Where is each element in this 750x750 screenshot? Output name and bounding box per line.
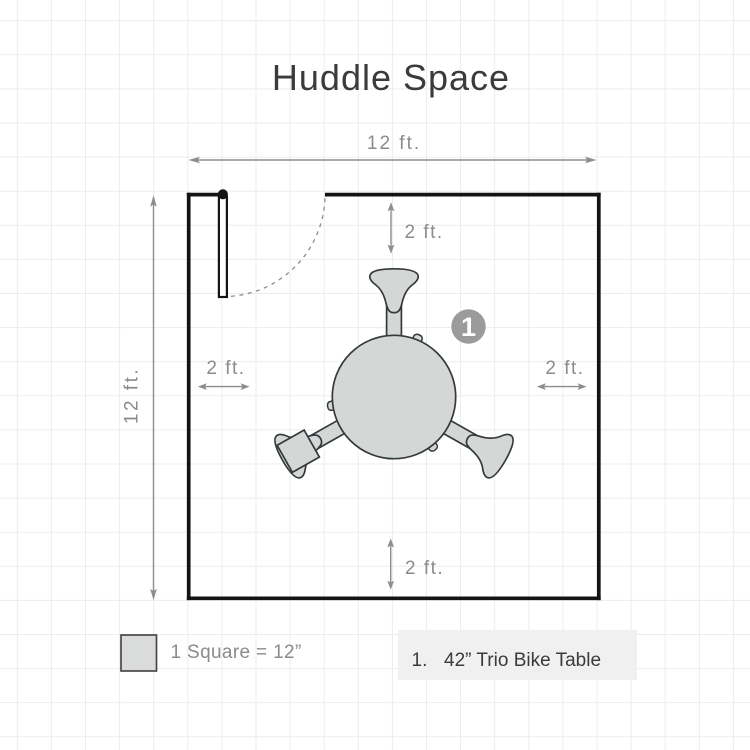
svg-text:2 ft.: 2 ft. (405, 222, 444, 243)
svg-text:1: 1 (461, 312, 476, 342)
svg-text:2 ft.: 2 ft. (206, 358, 245, 379)
svg-text:12 ft.: 12 ft. (367, 133, 421, 154)
svg-text:2 ft.: 2 ft. (545, 358, 584, 379)
svg-text:42” Trio Bike Table: 42” Trio Bike Table (444, 650, 601, 671)
svg-text:12 ft.: 12 ft. (122, 367, 143, 424)
svg-text:1 Square = 12”: 1 Square = 12” (171, 642, 302, 663)
svg-text:2 ft.: 2 ft. (405, 558, 444, 579)
svg-text:1.: 1. (412, 650, 428, 671)
svg-text:Huddle Space: Huddle Space (272, 57, 510, 98)
